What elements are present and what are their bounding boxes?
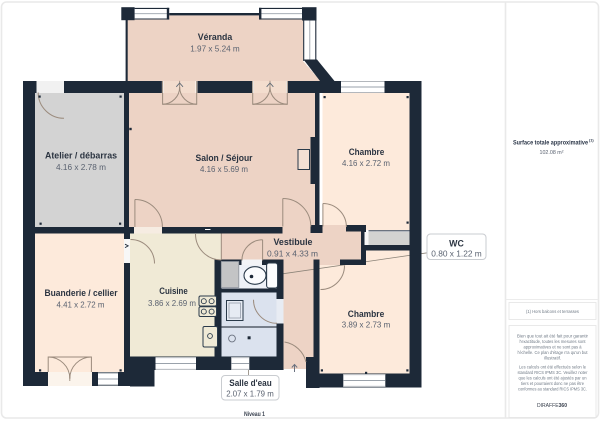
svg-text:l'échelle. Ce plan d'étage n'a: l'échelle. Ce plan d'étage n'a qu'un but	[518, 350, 589, 355]
svg-text:3.86 x 2.69 m: 3.86 x 2.69 m	[148, 298, 196, 308]
svg-text:3.89 x 2.73 m: 3.89 x 2.73 m	[342, 320, 391, 330]
svg-text:102.08 m²: 102.08 m²	[540, 150, 564, 156]
svg-text:Cuisine: Cuisine	[159, 285, 188, 296]
svg-text:Atelier / débarras: Atelier / débarras	[45, 150, 117, 161]
svg-text:4.41 x 2.72 m: 4.41 x 2.72 m	[57, 300, 105, 310]
svg-text:conformes au standard RICS IPM: conformes au standard RICS IPMS 3C.	[518, 386, 587, 391]
svg-text:0.91 x 4.33 m: 0.91 x 4.33 m	[267, 249, 318, 259]
svg-text:WC: WC	[449, 239, 464, 249]
svg-text:Chambre: Chambre	[348, 308, 385, 319]
svg-text:Bien que tout ait été fait pou: Bien que tout ait été fait pour garantir	[517, 333, 588, 338]
svg-text:4.16 x 2.72 m: 4.16 x 2.72 m	[342, 158, 390, 168]
svg-text:0.80 x 1.22 m: 0.80 x 1.22 m	[431, 250, 482, 259]
svg-text:Les calculs ont été effectués: Les calculs ont été effectués selon le	[519, 364, 586, 369]
svg-text:que les calculs ont été ajusté: que les calculs ont été ajustés par un	[519, 375, 587, 380]
svg-text:Vestibule: Vestibule	[274, 236, 313, 247]
svg-text:standard RICS IPMS 3C. Veuille: standard RICS IPMS 3C. Veuillez noter	[518, 370, 588, 375]
svg-text:1.97 x 5.24 m: 1.97 x 5.24 m	[190, 44, 240, 54]
svg-text:Buanderie / cellier: Buanderie / cellier	[45, 287, 118, 298]
svg-text:(1): (1)	[589, 139, 594, 143]
svg-text:2.07 x 1.79 m: 2.07 x 1.79 m	[226, 390, 274, 399]
svg-text:illustratif.: illustratif.	[544, 355, 561, 360]
svg-text:Véranda: Véranda	[198, 31, 233, 42]
svg-text:Salle d'eau: Salle d'eau	[229, 378, 272, 388]
svg-text:4.16 x 2.78 m: 4.16 x 2.78 m	[56, 162, 106, 172]
svg-text:(1) Hors balcons et terrasses: (1) Hors balcons et terrasses	[526, 309, 580, 314]
svg-text:Chambre: Chambre	[349, 146, 385, 157]
svg-text:tiers et pourraient donc ne pa: tiers et pourraient donc ne pas être	[521, 381, 584, 386]
svg-text:Niveau 1: Niveau 1	[244, 411, 265, 418]
svg-text:Surface totale approximative: Surface totale approximative	[513, 140, 588, 147]
svg-text:approximatives et ne sont pas: approximatives et ne sont pas à	[524, 344, 582, 349]
svg-text:l'exactitude, toutes les mesur: l'exactitude, toutes les mesures sont	[520, 339, 587, 344]
svg-text:DIRAFFE360: DIRAFFE360	[537, 403, 567, 409]
svg-text:Salon / Séjour: Salon / Séjour	[196, 152, 253, 163]
svg-text:4.16 x 5.69 m: 4.16 x 5.69 m	[200, 164, 248, 174]
